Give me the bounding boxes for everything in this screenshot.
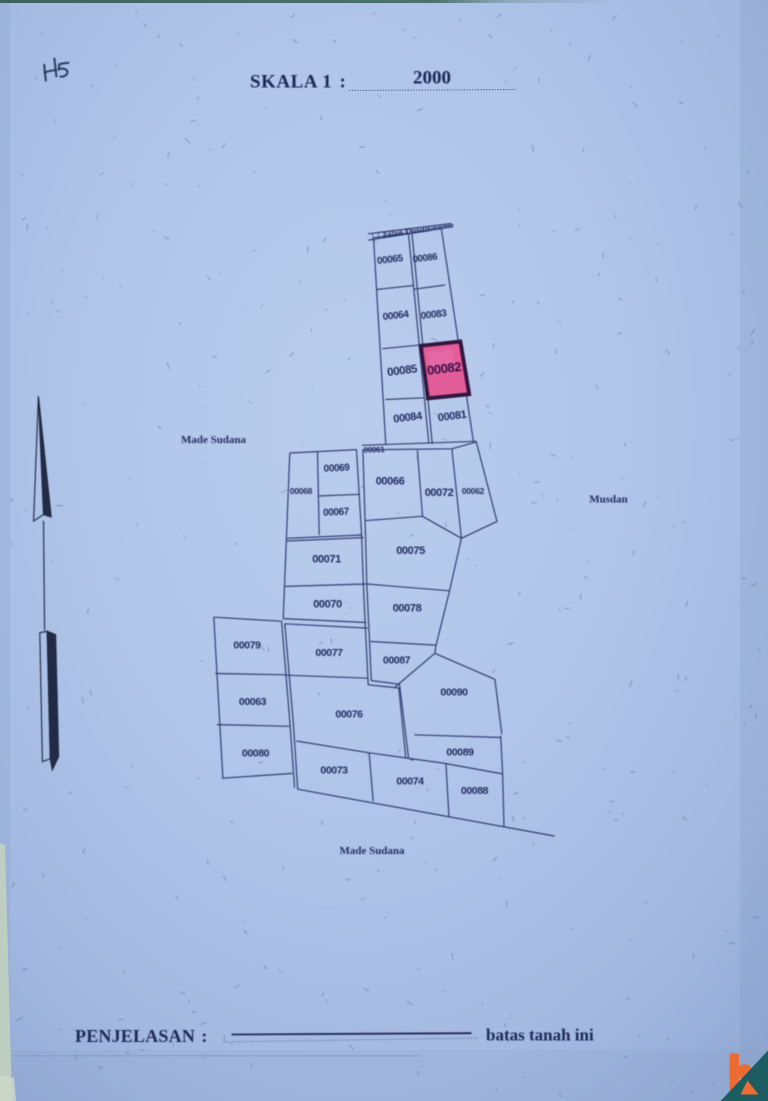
svg-text:SKALA 1 :: SKALA 1 : <box>250 72 346 93</box>
svg-text:Musdan: Musdan <box>589 494 628 506</box>
svg-text:00071: 00071 <box>312 554 341 566</box>
svg-text:00073: 00073 <box>320 764 348 776</box>
svg-text:00063: 00063 <box>239 696 267 708</box>
svg-text:00072: 00072 <box>425 487 454 499</box>
svg-text:00066: 00066 <box>376 476 405 488</box>
svg-text:00079: 00079 <box>233 639 261 651</box>
svg-text:Made Sudana: Made Sudana <box>181 434 247 446</box>
svg-text:00090: 00090 <box>440 686 468 698</box>
svg-text:00078: 00078 <box>393 603 422 615</box>
svg-text:00067: 00067 <box>323 506 350 518</box>
svg-text:00076: 00076 <box>335 708 363 720</box>
svg-text:00077: 00077 <box>315 647 343 659</box>
svg-text:00070: 00070 <box>313 599 342 611</box>
svg-text:00074: 00074 <box>396 775 424 787</box>
svg-text:00062: 00062 <box>462 486 485 496</box>
svg-text:batas tanah ini: batas tanah ini <box>486 1026 594 1045</box>
svg-text:2000: 2000 <box>413 68 451 89</box>
svg-text:00080: 00080 <box>242 747 270 759</box>
svg-text:00075: 00075 <box>396 545 425 557</box>
svg-text:00068: 00068 <box>290 486 313 496</box>
svg-text:00061: 00061 <box>363 445 385 455</box>
svg-text:00087: 00087 <box>383 654 411 666</box>
svg-text:Made Sudana: Made Sudana <box>339 845 405 857</box>
svg-text:00088: 00088 <box>461 785 489 797</box>
svg-text:00089: 00089 <box>446 746 474 758</box>
svg-text:PENJELASAN :: PENJELASAN : <box>75 1026 208 1046</box>
svg-text:00069: 00069 <box>323 462 350 474</box>
